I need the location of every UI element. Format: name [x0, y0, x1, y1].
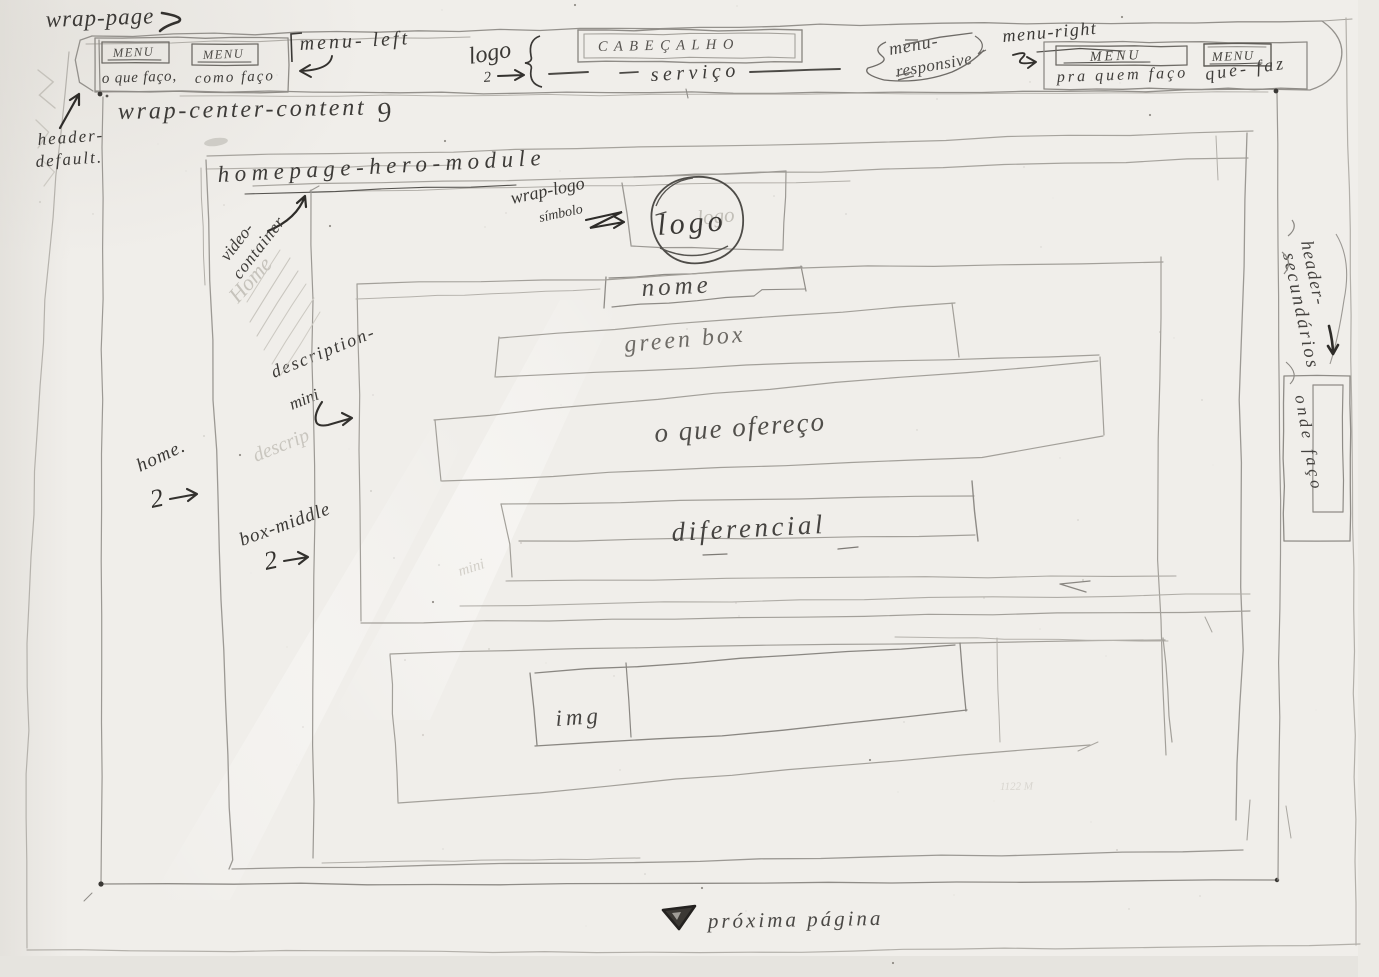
- svg-text:serviço: serviço: [650, 59, 740, 86]
- svg-text:logo: logo: [656, 204, 727, 242]
- svg-text:o que faço,: o que faço,: [102, 68, 178, 87]
- svg-text:C A B E Ç A L H O: C A B E Ç A L H O: [598, 37, 735, 55]
- svg-text:MENU: MENU: [202, 47, 245, 62]
- svg-text:1122 M: 1122 M: [1000, 780, 1034, 793]
- svg-text:wrap-center-content: wrap-center-content: [118, 95, 367, 125]
- svg-text:MENU: MENU: [112, 45, 155, 60]
- svg-text:wrap-page: wrap-page: [45, 3, 154, 32]
- svg-text:como faço: como faço: [195, 68, 276, 87]
- svg-text:próxima página: próxima página: [706, 906, 884, 933]
- svg-text:nome: nome: [641, 271, 712, 302]
- svg-text:img: img: [555, 703, 603, 731]
